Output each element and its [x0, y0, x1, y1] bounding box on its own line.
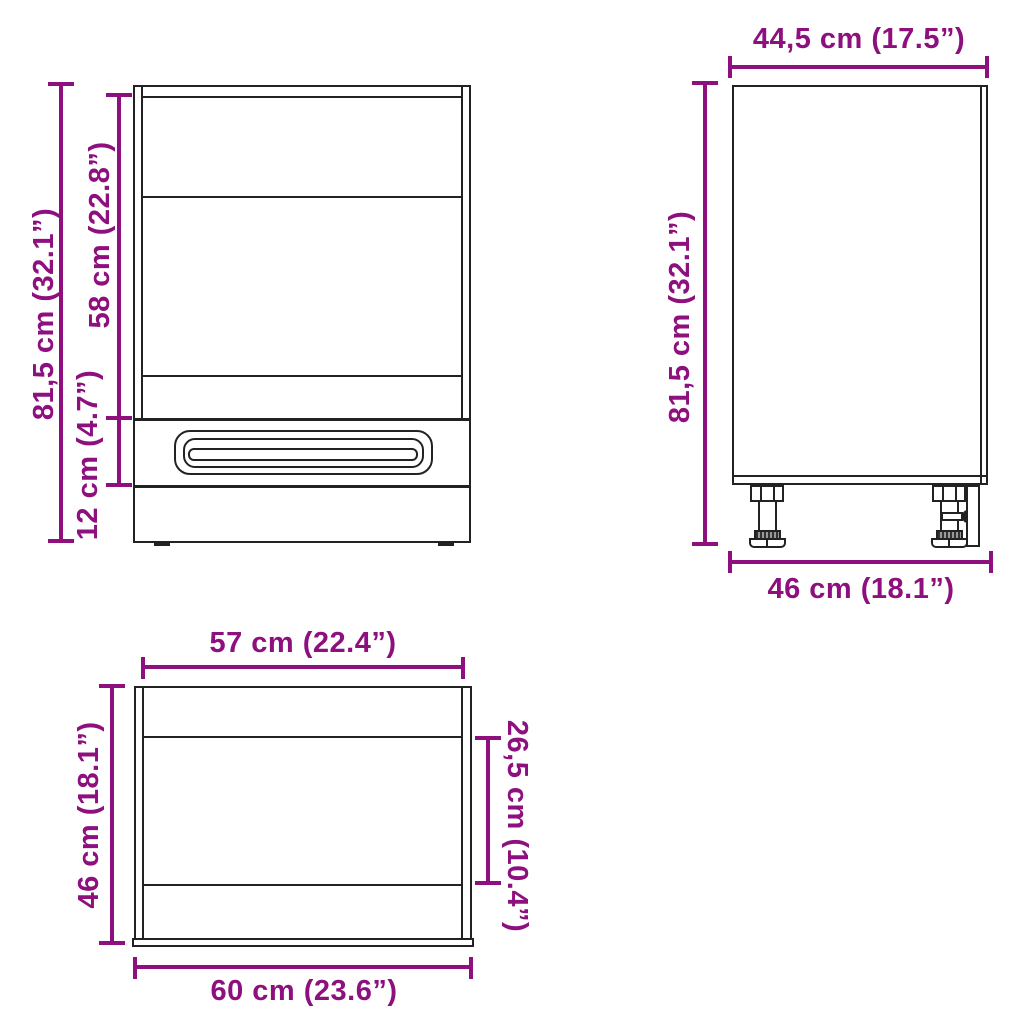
side-width-dim-label: 44,5 cm (17.5”)	[679, 22, 1024, 56]
front-drawer-dim-label: 12 cm (4.7”)	[71, 295, 105, 615]
top-partial-dim-tick-top	[475, 736, 501, 740]
top-outer-width-dim-line	[135, 965, 473, 969]
side-depth-dim-label: 46 cm (18.1”)	[681, 572, 1024, 606]
top-outer-width-dim-label: 60 cm (23.6”)	[124, 974, 484, 1008]
top-partial-dim-label: 26,5 cm (10.4”)	[500, 666, 534, 986]
side-width-dim-tick-right	[985, 56, 989, 78]
top-depth-dim-line	[110, 686, 114, 945]
front-carcass-outline	[133, 85, 471, 420]
front-left-stile-line	[141, 87, 143, 418]
side-foot-left-base-line	[766, 540, 768, 546]
side-back-panel-line	[980, 87, 982, 483]
front-upper-divider-line	[143, 196, 461, 198]
side-width-dim-line	[730, 65, 989, 69]
side-rear-bracket	[966, 485, 980, 547]
top-inner-width-dim-tick-left	[141, 657, 145, 679]
side-bottom-panel-line	[734, 475, 986, 477]
front-drawer-dim-tick-bottom	[106, 483, 132, 487]
side-depth-dim-tick-left	[728, 551, 732, 573]
front-lower-divider-line	[143, 375, 461, 377]
top-partial-dim-line	[486, 738, 490, 885]
side-height-dim-tick-top	[692, 81, 718, 85]
front-niche-dim-line	[117, 95, 121, 418]
side-foot-left-nut-line2	[773, 487, 775, 500]
side-width-dim-tick-left	[728, 56, 732, 78]
front-foot-mark-right	[438, 541, 454, 546]
top-divider-line-2	[144, 884, 461, 886]
drawer-handle-slot	[188, 448, 418, 461]
top-divider-line-1	[144, 736, 461, 738]
top-left-panel-line	[142, 688, 144, 938]
front-height-dim-tick-top	[48, 82, 74, 86]
dimension-diagram: 81,5 cm (32.1”) 58 cm (22.8”) 12 cm (4.7…	[0, 0, 1024, 1024]
front-top-rail-line	[143, 96, 461, 98]
side-depth-dim-tick-right	[989, 551, 993, 573]
side-foot-right-slot	[941, 512, 963, 521]
side-height-dim-label: 81,5 cm (32.1”)	[663, 157, 697, 477]
top-partial-dim-tick-bottom	[475, 881, 501, 885]
top-inner-width-dim-label: 57 cm (22.4”)	[123, 626, 483, 660]
top-inner-width-dim-line	[143, 665, 465, 669]
side-foot-right-nut-line2	[955, 487, 957, 500]
top-right-panel-line	[461, 688, 463, 938]
side-body-outline	[732, 85, 988, 485]
front-drawer-dim-line	[117, 418, 121, 486]
side-depth-dim-line	[730, 560, 993, 564]
side-height-dim-tick-bottom	[692, 542, 718, 546]
side-foot-left-stem	[758, 500, 777, 532]
front-foot-mark-left	[154, 541, 170, 546]
top-outline	[134, 686, 472, 940]
top-depth-dim-label: 46 cm (18.1”)	[72, 655, 106, 975]
side-foot-right-nut-line1	[942, 487, 944, 500]
top-inner-width-dim-tick-right	[461, 657, 465, 679]
front-height-dim-label: 81,5 cm (32.1”)	[27, 154, 61, 474]
side-foot-left-nut-line1	[760, 487, 762, 500]
side-height-dim-line	[703, 83, 707, 546]
side-foot-right-base-line	[948, 540, 950, 546]
front-right-stile-line	[461, 87, 463, 418]
front-plinth	[133, 486, 471, 543]
top-front-edge-strip	[132, 938, 474, 947]
